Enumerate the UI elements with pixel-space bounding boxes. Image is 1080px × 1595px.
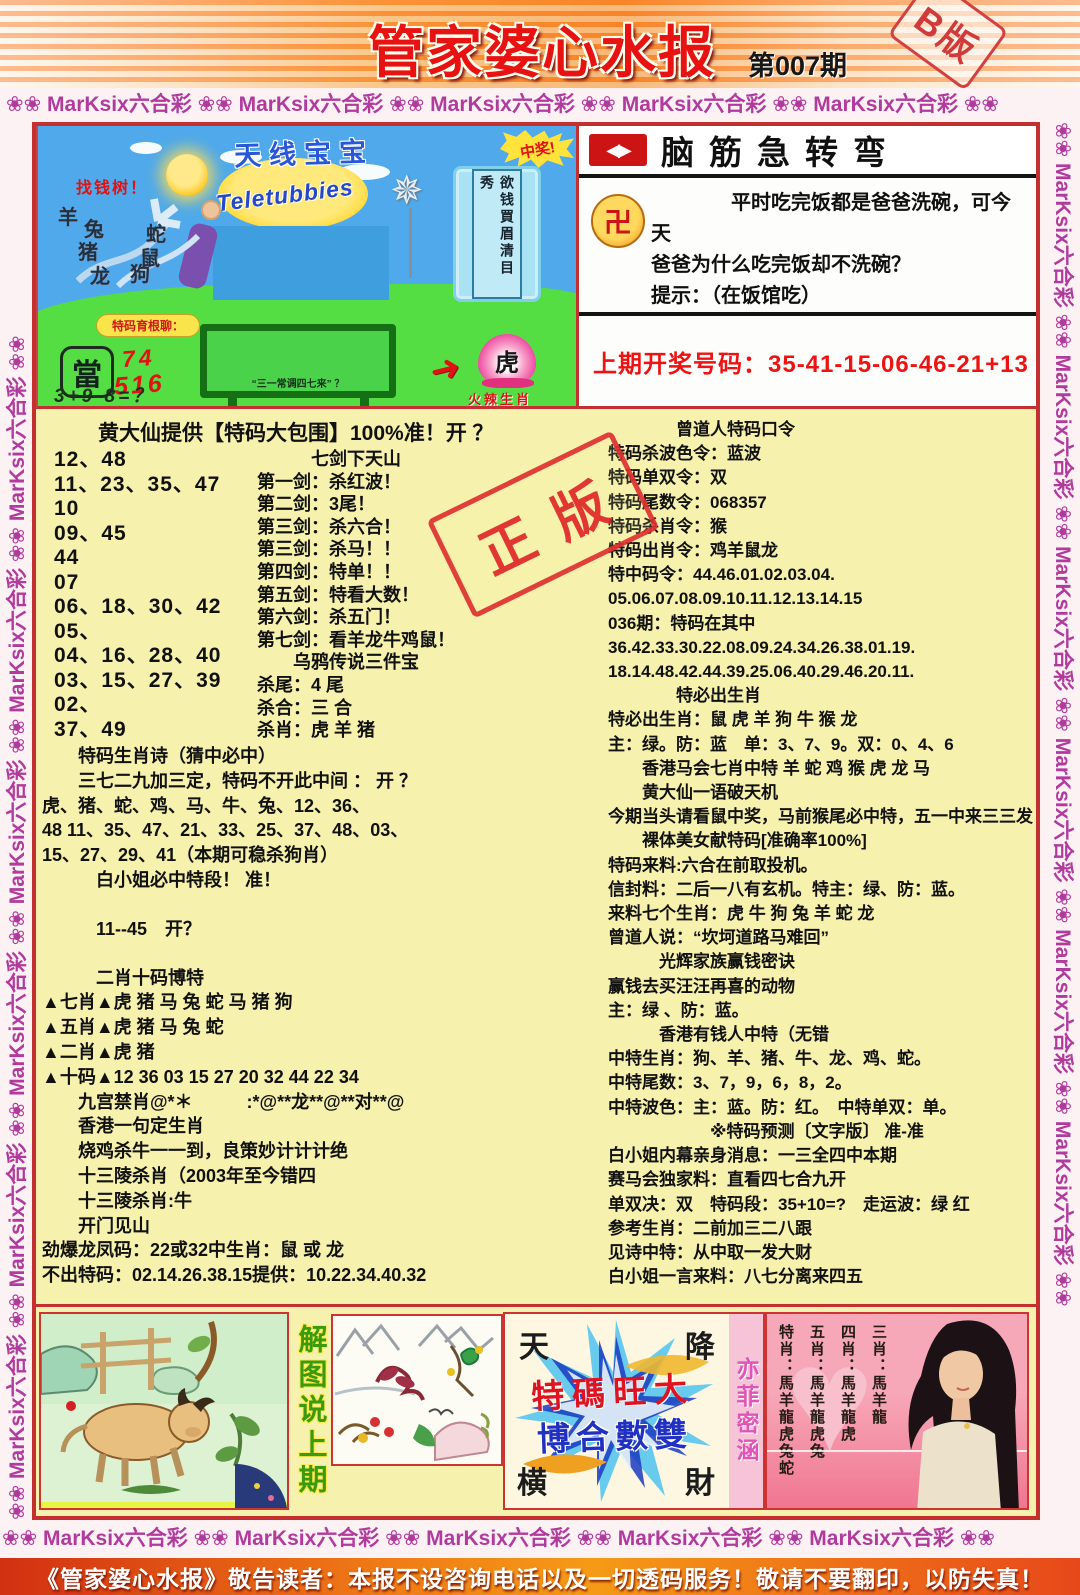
text-line: 第五剑：特看大数！	[257, 584, 602, 607]
text-line: 白小姐一言来料：八七分离来四五	[608, 1265, 1036, 1289]
text-line: 12、48	[54, 448, 257, 473]
text-line: 信封料：二后一八有玄机。特主：绿、防：蓝。	[608, 878, 1036, 902]
text-line: 特码来料:六合在前取投机。	[608, 854, 1036, 878]
text-line: ▲七肖▲虎 猪 马 兔 蛇 马 猪 狗	[42, 990, 602, 1015]
text-line: 特码尾数令：068357	[608, 491, 1036, 515]
win-starburst-text: 中奖!	[518, 136, 556, 163]
cartoon-formula: 3+9-8=？	[54, 381, 154, 408]
burst-corner-tr: 降	[685, 1322, 715, 1366]
text-line: 香港马会七肖中特 羊 蛇 鸡 猴 虎 龙 马	[608, 757, 1036, 781]
landscape-sketch	[333, 1316, 501, 1464]
right-column: 曾道人特码口令特码杀波色令：蓝波特码单双令：双特码尾数令：068357特码杀肖令…	[608, 416, 1036, 1289]
text-line: 44	[54, 546, 257, 571]
left-text-lines: 特码生肖诗（猜中必中） 三七二九加三定，特码不开此中间 ： 开 ？虎、猪、蛇、鸡…	[42, 744, 602, 1288]
ox-painting	[41, 1314, 287, 1508]
text-line: 036期：特码在其中	[608, 612, 1036, 636]
text-line: 杀合：三 合	[257, 697, 602, 720]
bottom-row: 解图说上期	[36, 1304, 1036, 1516]
text-line: 07	[54, 571, 257, 596]
text-line: 特码出肖令：鸡羊鼠龙	[608, 539, 1036, 563]
board-leg	[228, 398, 237, 406]
zodiac-column: 五肖：馬羊龍虎兔	[806, 1324, 827, 1502]
text-line: 特码生肖诗（猜中必中）	[42, 744, 602, 769]
teaser-header: ◀▶ 脑筋急转弯	[579, 126, 1036, 178]
burst-side-strip: 亦菲密涵	[729, 1314, 763, 1508]
vertical-banner: 欲钱買眉清目秀	[453, 166, 541, 302]
zodiac-char: 龙	[90, 260, 110, 289]
text-line: 中特波色：主：蓝。防：红。 中特单双：单。	[608, 1096, 1036, 1120]
text-line: 10	[54, 497, 257, 522]
zodiac-column: 特肖：馬羊龍虎兔蛇	[775, 1324, 796, 1502]
text-line: 02、	[54, 693, 257, 718]
text-line: ▲五肖▲虎 猪 马 兔 蛇	[42, 1015, 602, 1040]
text-line: 特码杀肖令：猴	[608, 515, 1036, 539]
text-line: 白小姐必中特段！ 准！	[42, 868, 602, 893]
text-line: 杀肖：虎 羊 猪	[257, 719, 602, 742]
text-line: 赢钱去买汪汪再喜的动物	[608, 975, 1036, 999]
right-text-lines: 曾道人特码口令特码杀波色令：蓝波特码单双令：双特码尾数令：068357特码杀肖令…	[608, 418, 1036, 1289]
board-leg	[360, 398, 369, 406]
luck-coin-icon: 卍	[591, 194, 645, 248]
text-line: ▲十码▲12 36 03 15 27 20 32 44 22 34	[42, 1065, 602, 1090]
text-line: 18.14.48.42.44.39.25.06.40.29.46.20.11.	[608, 660, 1036, 684]
teaser-title: 脑筋急转弯	[647, 126, 901, 174]
text-line: ※特码预测〔文字版〕 准-准	[608, 1120, 1036, 1144]
text-line: 香港一句定生肖	[42, 1114, 602, 1139]
text-line: 04、16、28、40	[54, 644, 257, 669]
text-line: 37、49	[54, 718, 257, 743]
newspaper-page: 管家婆心水报 第007期 B版 ❀❀ MarKsix六合彩 ❀❀ MarKsix…	[0, 0, 1080, 1595]
text-line: 开门见山	[42, 1214, 602, 1239]
text-line: 见诗中特：从中取一发大财	[608, 1241, 1036, 1265]
teaser-logo-icon: ◀▶	[589, 134, 647, 166]
text-line	[42, 893, 602, 917]
content-frame: 天线宝宝 Teletubbies 找钱树！ 羊 兔 蛇 猪 鼠 龙 狗	[32, 122, 1040, 1520]
text-line: 第六剑：杀五门！	[257, 606, 602, 629]
text-line: 香港有钱人中特（无错	[608, 1023, 1036, 1047]
speech-bubble: 特码育根聊：	[96, 314, 200, 337]
cartoon-number-1: 74	[121, 344, 156, 373]
text-line: 特码杀波色令：蓝波	[608, 442, 1036, 466]
text-line: 来料七个生肖：虎 牛 狗 兔 羊 蛇 龙	[608, 902, 1036, 926]
text-line: 特必出生肖	[608, 684, 1036, 708]
text-line: 48 11、35、47、21、33、25、37、48、03、	[42, 818, 602, 843]
green-board-text: “三一常调四七来” ？	[207, 375, 389, 390]
footer-notice: 《管家婆心水报》敬告读者：本报不设咨询电话以及一切透码服务！敬请不要翻印，以防失…	[0, 1558, 1080, 1595]
caption-text: 解图说上期	[289, 1324, 331, 1499]
burst-corner-bl: 横	[517, 1458, 547, 1502]
border-strip-right: ❀❀ MarKsix六合彩 ❀❀ MarKsix六合彩 ❀❀ MarKsix六合…	[1040, 122, 1080, 1520]
windmill-pole	[409, 208, 412, 278]
burst-corner-tl: 天	[519, 1322, 549, 1366]
cartoon-cn-title: 天线宝宝	[233, 130, 374, 174]
caption-panel: 解图说上期	[289, 1312, 331, 1510]
text-line	[42, 942, 602, 966]
cloud	[130, 142, 162, 154]
text-line: 爸爸为什么吃完饭却不洗碗？	[651, 250, 1028, 281]
text-line: 裸体美女献特码[准确率100%]	[608, 829, 1036, 853]
tiger-character: 虎	[495, 343, 519, 378]
text-line: 36.42.33.30.22.08.09.24.34.26.38.01.19.	[608, 636, 1036, 660]
text-line: 十三陵杀肖:牛	[42, 1189, 602, 1214]
photo-panel: ♥ 特肖：馬羊龍虎兔蛇 五肖：馬羊龍虎兔 四肖：馬羊龍虎 三肖：馬羊龍	[765, 1312, 1029, 1510]
text-line: 05、	[54, 620, 257, 645]
text-line: 提示：（在饭馆吃）	[651, 281, 1028, 312]
text-line: 特码单双令：双	[608, 466, 1036, 490]
border-strip-right-text: ❀❀ MarKsix六合彩 ❀❀ MarKsix六合彩 ❀❀ MarKsix六合…	[1046, 122, 1078, 1520]
text-line: ▲二肖▲虎 猪	[42, 1040, 602, 1065]
text-line: 03、15、27、39	[54, 669, 257, 694]
text-line: 赛马会独家料：直看四七合九开	[608, 1168, 1036, 1192]
text-line: 黄大仙一语破天机	[608, 781, 1036, 805]
text-line: 特必出生肖：鼠 虎 羊 狗 牛 猴 龙	[608, 708, 1036, 732]
top-row: 天线宝宝 Teletubbies 找钱树！ 羊 兔 蛇 猪 鼠 龙 狗	[36, 126, 1036, 409]
text-line: 三七二九加三定，特码不开此中间 ： 开 ？	[42, 769, 602, 794]
text-line: 光辉家族赢钱密诀	[608, 950, 1036, 974]
text-line: 劲爆龙凤码：22或32中生肖：鼠 或 龙	[42, 1238, 602, 1263]
text-line: 今期当头请看鼠中奖，马前猴尾必中特，五一中来三三发	[608, 805, 1036, 829]
woman-photo	[887, 1314, 1027, 1510]
windmill-icon: ✵	[390, 168, 424, 214]
cartoon-panel: 天线宝宝 Teletubbies 找钱树！ 羊 兔 蛇 猪 鼠 龙 狗	[36, 126, 579, 409]
text-line: 05.06.07.08.09.10.11.12.13.14.15	[608, 587, 1036, 611]
ox-painting-panel	[39, 1312, 289, 1510]
teaser-question-box: 卍 平时吃完饭都是爸爸洗碗，可今天爸爸为什么吃完饭却不洗碗？提示：（在饭馆吃）	[579, 178, 1036, 316]
last-draw-result: 上期开奖号码：35-41-15-06-46-21+13	[579, 316, 1036, 406]
burst-slogan-2: 博合數雙	[536, 1407, 694, 1460]
text-line: 09、45	[54, 522, 257, 547]
number-list: 12、4811、23、35、471009、45440706、18、30、4205…	[42, 448, 257, 742]
border-strip-left: ❀❀ MarKsix六合彩 ❀❀ MarKsix六合彩 ❀❀ MarKsix六合…	[0, 122, 32, 1520]
left-headline: 黄大仙提供【特码大包围】100%准！开 ？	[42, 420, 602, 448]
text-line: 曾道人特码口令	[608, 418, 1036, 442]
text-line: 11、23、35、47	[54, 473, 257, 498]
vertical-banner-text: 欲钱買眉清目秀	[472, 169, 522, 299]
text-line: 中特尾数：3、7，9，6，8，2。	[608, 1071, 1036, 1095]
text-line: 单双决：双 特码段：35+10=? 走运波：绿 红	[608, 1193, 1036, 1217]
starburst-panel: 天 降 横 財 特碼旺大 博合數雙 亦菲密涵	[503, 1312, 765, 1510]
text-line: 参考生肖：二前加三二八跟	[608, 1217, 1036, 1241]
text-line: 主：绿。防：蓝 单：3、7、9。双：0、4、6	[608, 733, 1036, 757]
text-line: 十三陵杀肖（2003年至今错四	[42, 1164, 602, 1189]
text-line: 主：绿 、防：蓝。	[608, 999, 1036, 1023]
body-area: 黄大仙提供【特码大包围】100%准！开 ？ 12、4811、23、35、4710…	[36, 412, 1036, 1304]
landscape-sketch-panel	[331, 1314, 503, 1466]
green-board: “三一常调四七来” ？	[200, 324, 396, 398]
burst-side-text: 亦菲密涵	[729, 1357, 763, 1465]
win-starburst: 中奖!	[500, 130, 574, 168]
text-line: 虎、猪、蛇、鸡、马、牛、兔、12、36、	[42, 794, 602, 819]
text-line: 11--45 开？	[42, 917, 602, 942]
masthead: 管家婆心水报 第007期 B版	[0, 0, 1080, 88]
peach-leaf	[482, 378, 534, 388]
teaser-question: 平时吃完饭都是爸爸洗碗，可今天爸爸为什么吃完饭却不洗碗？提示：（在饭馆吃）	[651, 188, 1028, 312]
text-line: 中特生肖：狗、羊、猪、牛、龙、鸡、蛇。	[608, 1047, 1036, 1071]
text-line: 平时吃完饭都是爸爸洗碗，可今天	[651, 188, 1028, 250]
border-strip-bottom: ❀❀ MarKsix六合彩 ❀❀ MarKsix六合彩 ❀❀ MarKsix六合…	[0, 1520, 1080, 1558]
text-line: 第七剑：看羊龙牛鸡鼠！	[257, 629, 602, 652]
text-line: 特中码令：44.46.01.02.03.04.	[608, 563, 1036, 587]
money-tree-label: 找钱树！	[76, 174, 148, 198]
brain-teaser-panel: ◀▶ 脑筋急转弯 卍 平时吃完饭都是爸爸洗碗，可今天爸爸为什么吃完饭却不洗碗？提…	[579, 126, 1036, 409]
zodiac-column: 四肖：馬羊龍虎	[837, 1324, 858, 1502]
text-line: 白小姐内幕亲身消息：一三全四中本期	[608, 1144, 1036, 1168]
border-strip-top: ❀❀ MarKsix六合彩 ❀❀ MarKsix六合彩 ❀❀ MarKsix六合…	[0, 88, 1080, 122]
text-line: 06、18、30、42	[54, 595, 257, 620]
text-line: 不出特码：02.14.26.38.15提供：10.22.34.40.32	[42, 1263, 602, 1288]
text-line: 二肖十码博特	[42, 966, 602, 991]
zodiac-columns: 特肖：馬羊龍虎兔蛇 五肖：馬羊龍虎兔 四肖：馬羊龍虎 三肖：馬羊龍	[775, 1324, 889, 1502]
paper-title: 管家婆心水报	[368, 8, 716, 88]
tiger-caption: 火辣生肖	[468, 389, 532, 408]
zodiac-char: 羊	[58, 201, 78, 230]
text-line: 烧鸡杀牛一一到，良策妙计计计绝	[42, 1139, 602, 1164]
text-line: 15、27、29、41（本期可稳杀狗肖）	[42, 843, 602, 868]
zodiac-column: 三肖：馬羊龍	[868, 1324, 889, 1502]
zodiac-char: 狗	[130, 258, 150, 287]
burst-corner-br: 財	[685, 1458, 715, 1502]
issue-number: 第007期	[748, 44, 847, 83]
border-strip-left-text: ❀❀ MarKsix六合彩 ❀❀ MarKsix六合彩 ❀❀ MarKsix六合…	[2, 122, 32, 1520]
text-line: 九宫禁肖@*＊ :*@**龙**@**对**@	[42, 1090, 602, 1115]
text-line: 乌鸦传说三件宝	[257, 651, 602, 674]
text-line: 曾道人说：“坎坷道路马难回”	[608, 926, 1036, 950]
text-line: 杀尾：4 尾	[257, 674, 602, 697]
